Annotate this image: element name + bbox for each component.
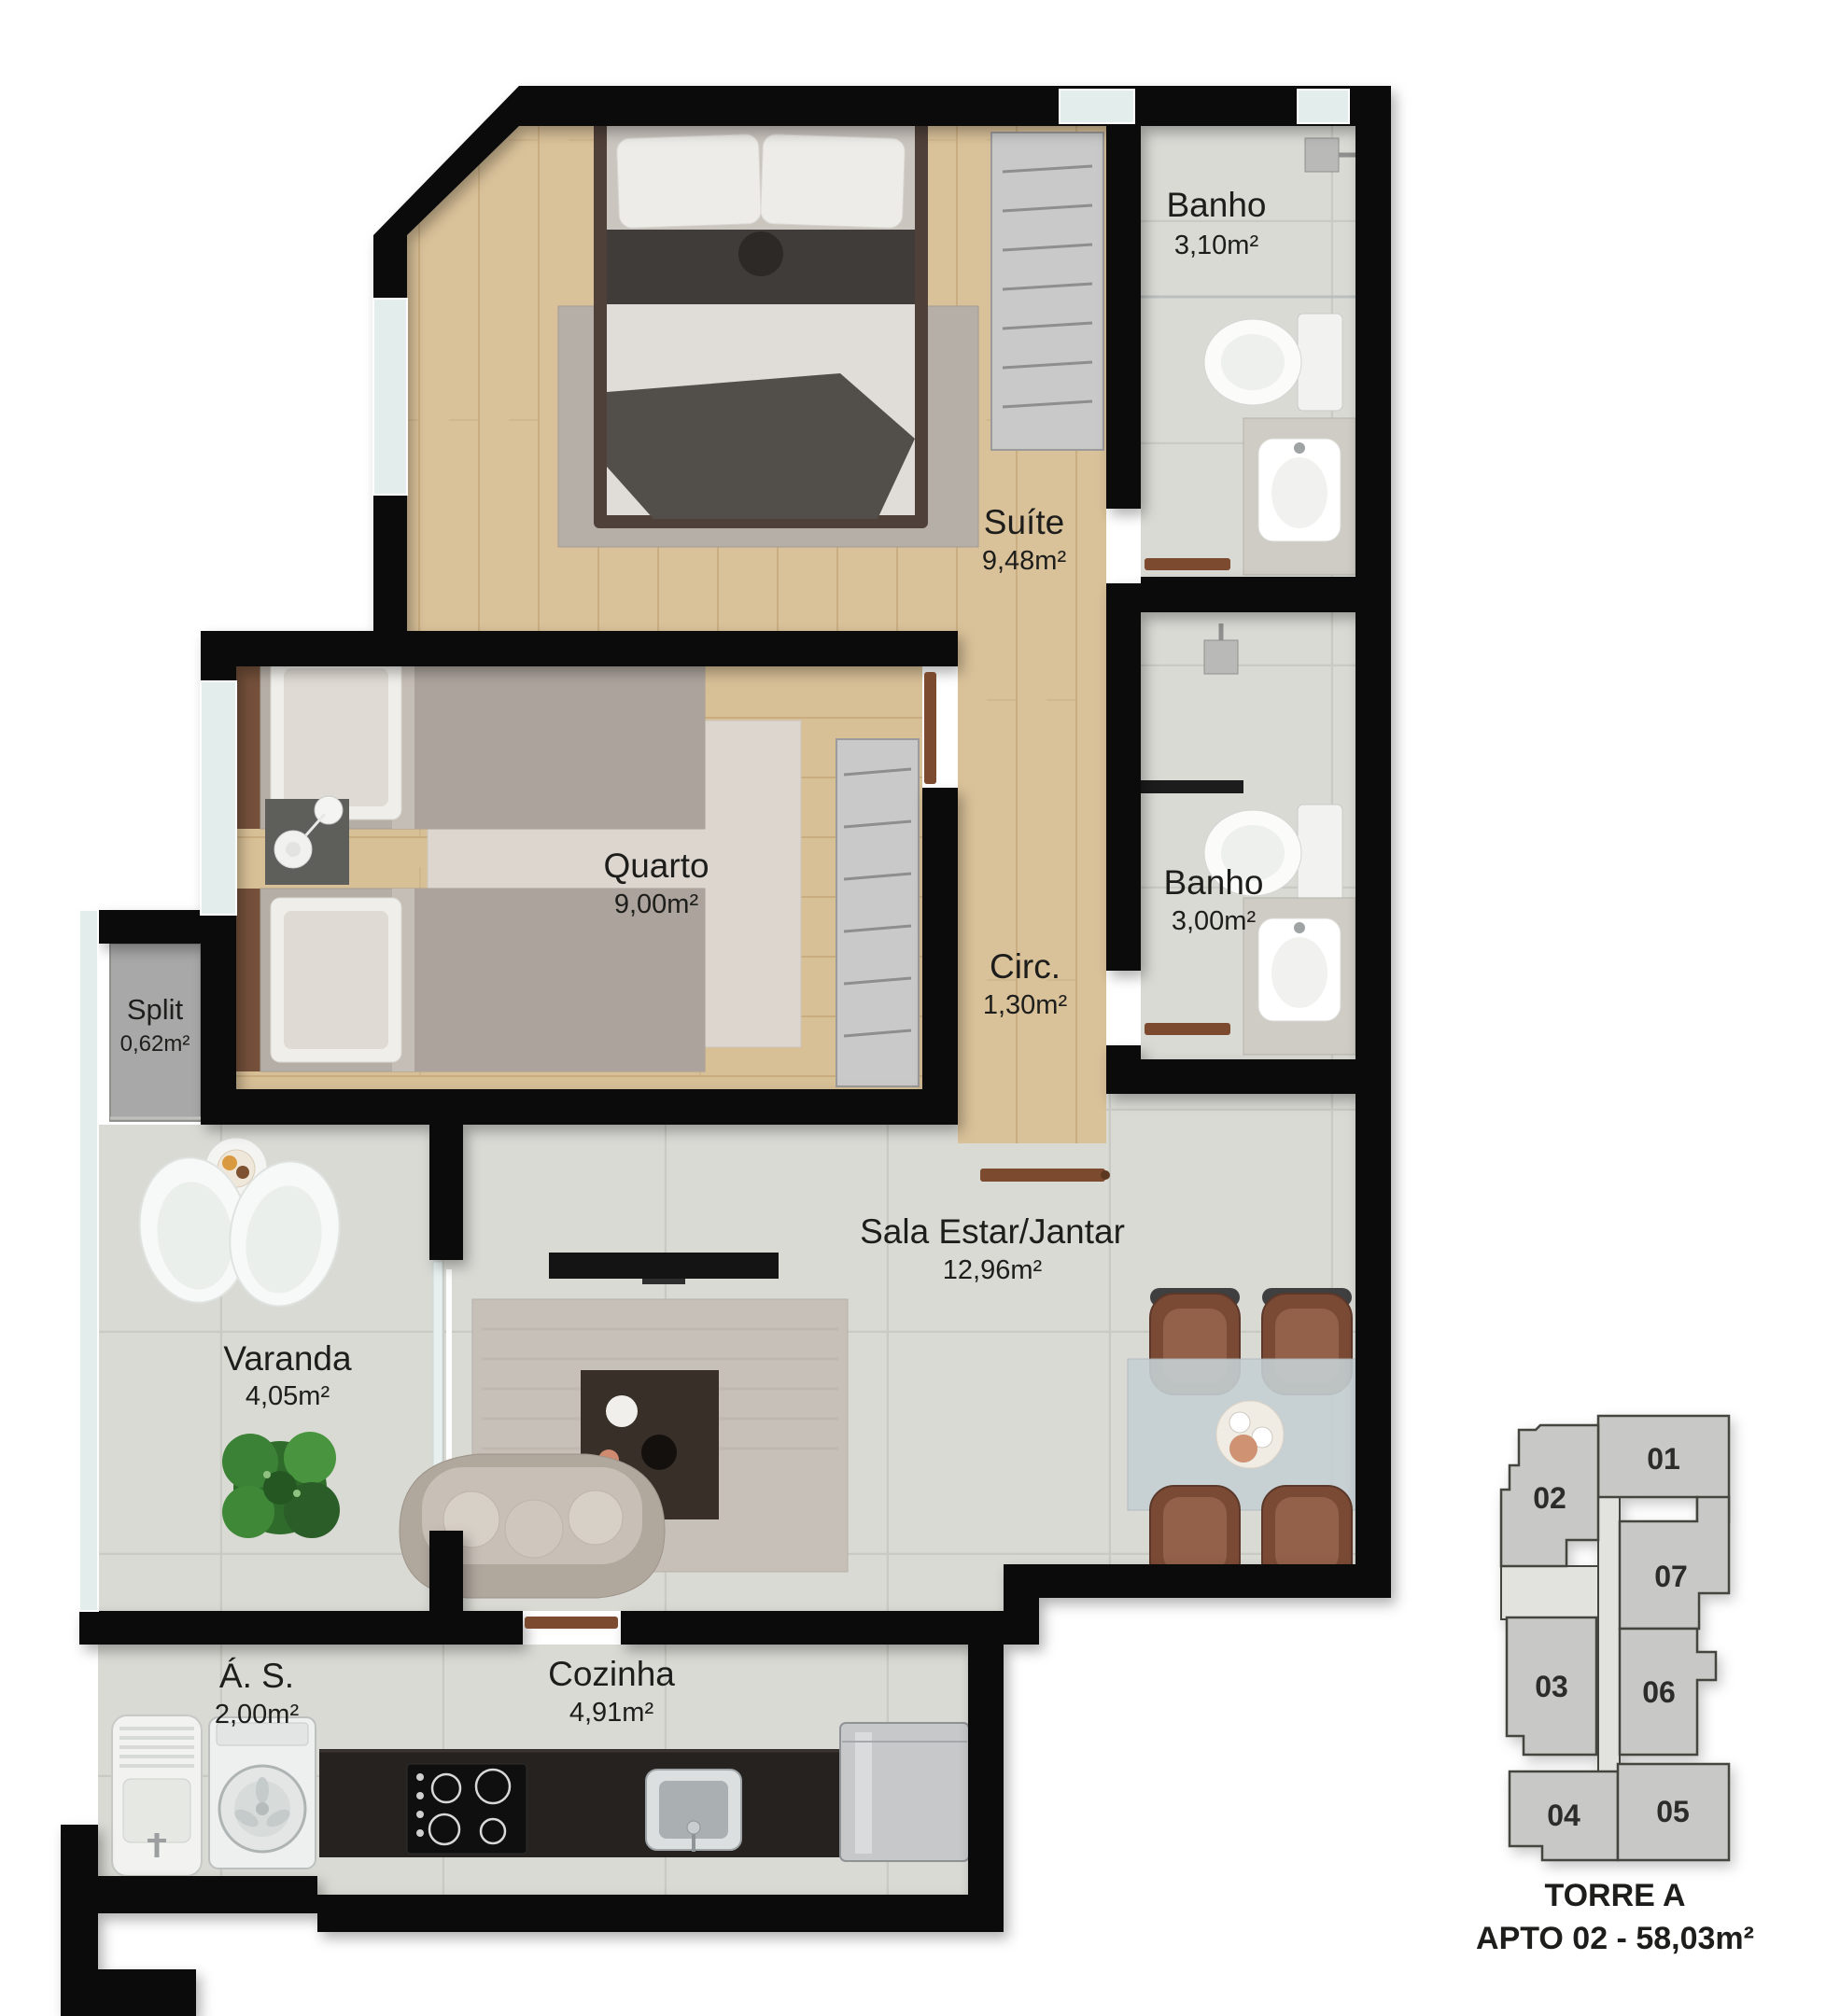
bed-cushion <box>738 231 783 276</box>
decor-bowl <box>606 1395 638 1427</box>
wall-bedroom-east <box>922 788 958 1089</box>
wall-living-south <box>1004 1564 1355 1598</box>
keyplan-unit-07-label: 07 <box>1654 1560 1688 1593</box>
keyplan-unit-04-label: 04 <box>1547 1799 1580 1832</box>
room-label-suite: Suíte <box>984 503 1064 541</box>
bed-pillow <box>616 133 761 228</box>
wall-kitchen-north <box>317 1611 523 1645</box>
food-item <box>236 1166 249 1179</box>
sofa-pillow <box>505 1500 563 1558</box>
wall-bath2-west <box>1106 583 1141 971</box>
wall-between-baths <box>1141 577 1355 612</box>
floorplan-page: Banho 3,10m² Suíte 9,48m² Quarto 9,00m² … <box>0 0 1840 2016</box>
bed-pillow <box>760 133 905 228</box>
tv <box>549 1253 779 1279</box>
room-label-cozinha: Cozinha <box>548 1655 675 1693</box>
wall-laundry-south <box>98 1876 317 1913</box>
faucet <box>1294 442 1305 454</box>
door-bath2 <box>1145 1023 1230 1035</box>
decor-vase <box>641 1435 677 1470</box>
knob <box>416 1811 424 1818</box>
room-area-banho2: 3,00m² <box>1172 906 1257 936</box>
pillow-inner <box>284 668 388 806</box>
room-label-quarto: Quarto <box>603 847 709 885</box>
shower-head <box>1305 138 1339 172</box>
wall-split-north <box>98 910 201 944</box>
keyplan-unit-05-label: 05 <box>1656 1795 1690 1828</box>
door-bedroom <box>924 672 936 784</box>
room-area-quarto: 9,00m² <box>614 889 699 919</box>
chair-seat <box>1275 1497 1339 1572</box>
kitchen-sink <box>646 1770 741 1852</box>
room-area-split: 0,62m² <box>120 1031 190 1057</box>
room-area-circ: 1,30m² <box>983 990 1068 1020</box>
fridge-highlight <box>855 1732 872 1854</box>
cup <box>1229 1412 1250 1433</box>
keyplan: 01 02 07 03 06 04 05 <box>1501 1416 1729 1860</box>
wall-bedroom-south <box>236 1089 958 1125</box>
keyplan-apartment-label: APTO 02 - 58,03m² <box>1476 1921 1754 1956</box>
room-area-banho1: 3,10m² <box>1174 231 1259 260</box>
keyplan-corridor <box>1501 1566 1598 1619</box>
wall-kitchen-north <box>621 1611 1039 1645</box>
sink-bowl <box>1271 457 1327 528</box>
sofa-pillow <box>569 1491 623 1545</box>
window-bedroom <box>201 681 236 915</box>
wall-balcony-divider <box>429 1125 463 1260</box>
food-item <box>222 1155 237 1170</box>
knob <box>416 1773 424 1781</box>
room-area-varanda: 4,05m² <box>246 1381 330 1411</box>
room-label-area-servico: Á. S. <box>219 1657 294 1695</box>
knob <box>416 1829 424 1837</box>
room-area-cozinha: 4,91m² <box>569 1698 654 1728</box>
drum-hub <box>256 1802 269 1815</box>
wall-kitchen-south <box>317 1895 1004 1932</box>
keyplan-corridor <box>1598 1497 1620 1777</box>
chair-seat <box>1163 1497 1227 1572</box>
wall-bath2-south <box>1106 1059 1355 1094</box>
sink-bowl <box>1271 937 1327 1008</box>
suite-closet <box>991 133 1103 450</box>
balcony-glass-railing <box>79 910 98 1611</box>
door-bath1 <box>1145 558 1230 570</box>
sink-faucet-base <box>687 1821 700 1834</box>
room-label-circ: Circ. <box>990 947 1060 986</box>
cooktop-body <box>407 1764 527 1854</box>
shower-partition <box>1141 780 1243 793</box>
keyplan-unit-06-label: 06 <box>1642 1675 1676 1709</box>
toilet-tank <box>1298 314 1342 411</box>
laundry-tank <box>112 1715 202 1876</box>
wall-corner <box>61 1969 196 2016</box>
fridge <box>840 1723 969 1861</box>
room-label-sala: Sala Estar/Jantar <box>860 1212 1125 1251</box>
room-label-banho2: Banho <box>1164 863 1264 902</box>
tank-basin <box>123 1779 190 1842</box>
bedroom-closet <box>836 739 919 1086</box>
plant <box>222 1432 340 1538</box>
window-bath1 <box>1298 90 1349 123</box>
window-top <box>1060 90 1134 123</box>
headboard <box>236 646 260 829</box>
room-label-split: Split <box>127 993 184 1026</box>
room-label-banho1: Banho <box>1167 186 1267 224</box>
floorplan-canvas: Banho 3,10m² Suíte 9,48m² Quarto 9,00m² … <box>0 0 1840 2016</box>
wall-bedroom-north <box>201 631 958 666</box>
room-label-varanda: Varanda <box>223 1339 352 1378</box>
drum-blade <box>256 1777 269 1803</box>
shower-head <box>1204 640 1238 674</box>
knob <box>416 1792 424 1799</box>
leaf-highlight <box>263 1471 271 1478</box>
keyplan-unit-01-label: 01 <box>1647 1442 1680 1476</box>
room-area-sala: 12,96m² <box>943 1255 1043 1285</box>
room-area-area-servico: 2,00m² <box>215 1700 300 1729</box>
faucet <box>1294 922 1305 933</box>
toilet-seat <box>1221 334 1285 390</box>
circulation-floor <box>958 631 1106 1143</box>
cup <box>286 842 301 857</box>
wall-balcony-south <box>79 1611 317 1645</box>
wall-top <box>519 86 1391 126</box>
headboard <box>236 889 260 1071</box>
tv-stand <box>642 1279 685 1284</box>
keyplan-tower-label: TORRE A <box>1544 1878 1685 1913</box>
door-hinge <box>1101 1170 1110 1180</box>
washing-machine <box>209 1717 316 1869</box>
wall-bath1-west <box>1106 126 1141 509</box>
plate <box>1229 1435 1257 1463</box>
wall-right <box>1355 86 1391 1598</box>
window-suite <box>373 299 407 495</box>
leaf-highlight <box>293 1490 301 1497</box>
keyplan-unit-02-label: 02 <box>1533 1481 1566 1515</box>
door-kitchen <box>525 1617 618 1629</box>
wall-kitchen-east <box>968 1645 1004 1895</box>
keyplan-unit-03-label: 03 <box>1535 1670 1568 1703</box>
door-entry <box>980 1169 1105 1182</box>
cooktop <box>407 1764 527 1854</box>
toilet-tank <box>1298 805 1342 902</box>
blanket <box>392 646 705 829</box>
room-area-suite: 9,48m² <box>982 546 1067 576</box>
pillow-inner <box>284 911 388 1049</box>
wall-balcony-divider <box>429 1531 463 1611</box>
